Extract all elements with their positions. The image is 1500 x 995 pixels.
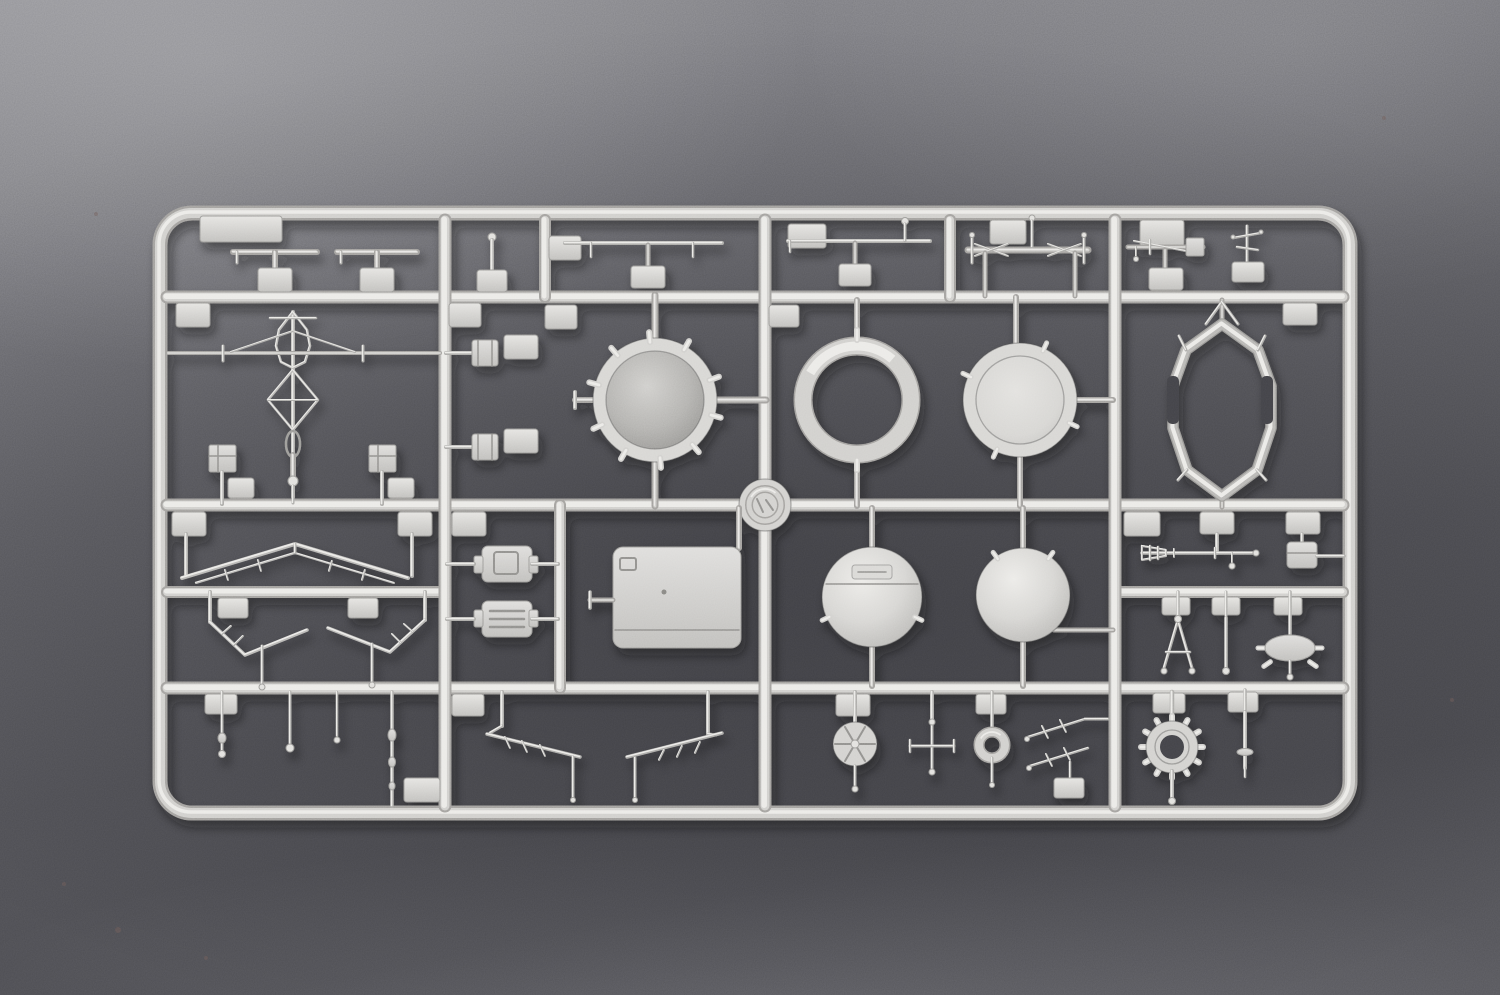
photo-grain-overlay: [0, 0, 1500, 995]
photo-model-kit-sprue: [0, 0, 1500, 995]
sprue-photo-svg: [0, 0, 1500, 995]
